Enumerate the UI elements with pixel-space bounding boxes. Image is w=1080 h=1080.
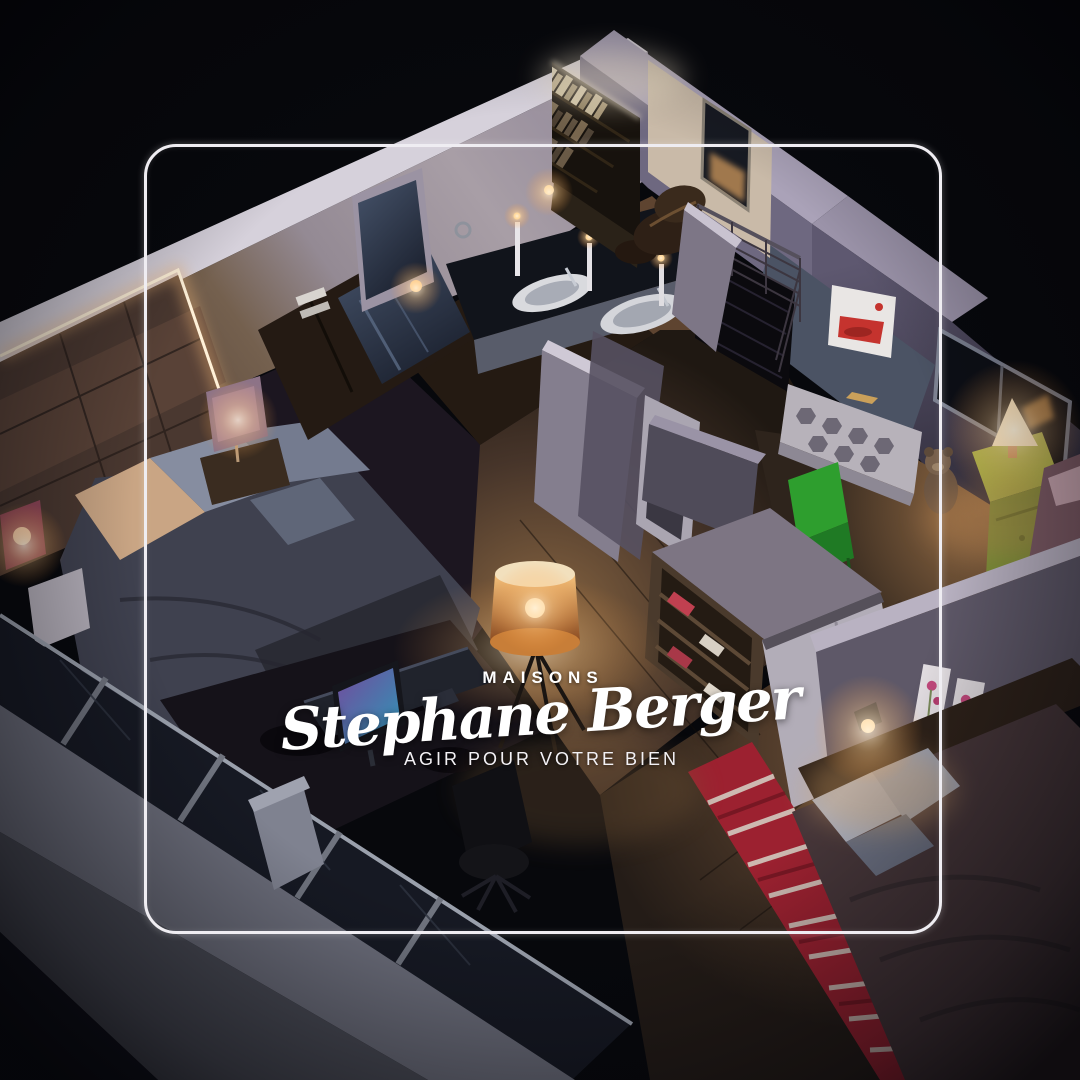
house-render xyxy=(0,0,1080,1080)
poster-canvas: MAISONS Stephane Berger AGIR POUR VOTRE … xyxy=(0,0,1080,1080)
vignette xyxy=(0,0,1080,1080)
brand-block: MAISONS Stephane Berger AGIR POUR VOTRE … xyxy=(0,668,1080,770)
brand-tagline: AGIR POUR VOTRE BIEN xyxy=(0,749,1080,770)
